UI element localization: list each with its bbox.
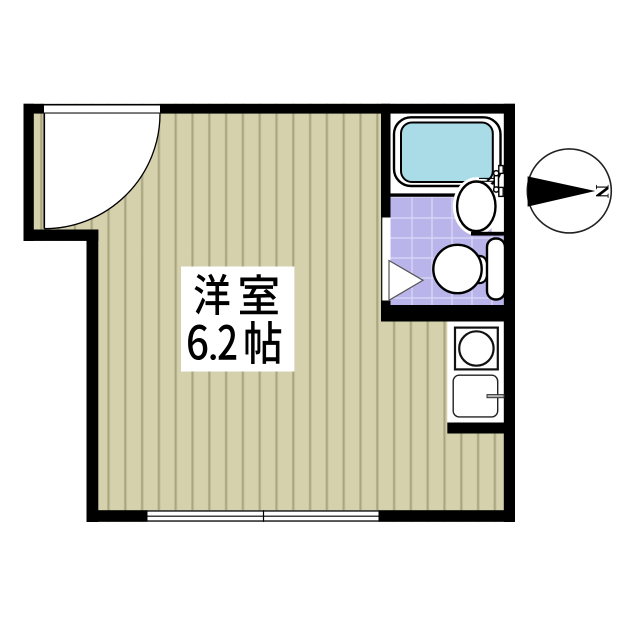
- svg-text:N: N: [591, 185, 612, 199]
